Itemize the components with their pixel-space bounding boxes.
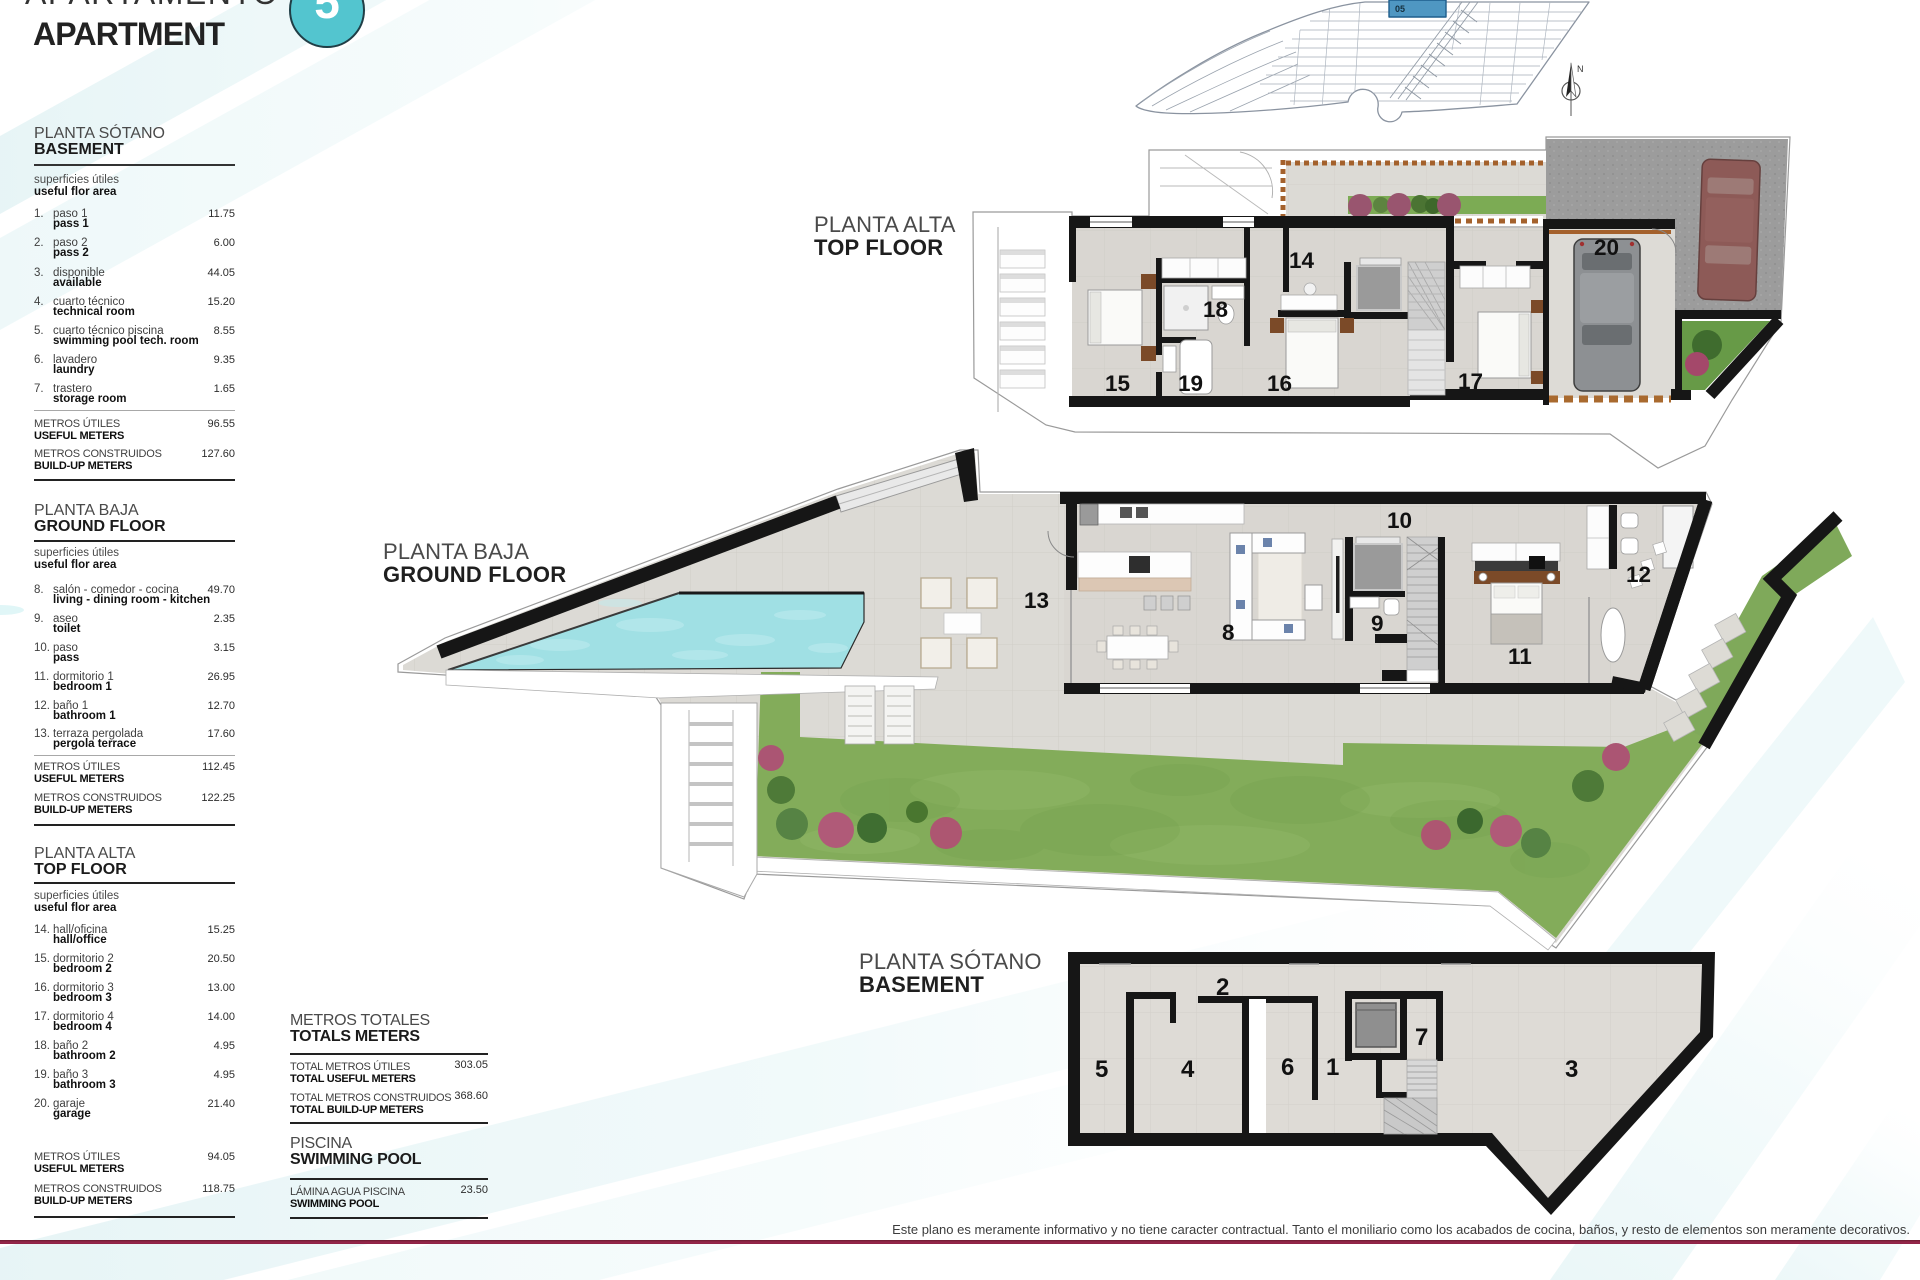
svg-text:10: 10 (1387, 508, 1412, 533)
svg-text:6: 6 (1281, 1054, 1294, 1081)
svg-text:20: 20 (1594, 235, 1619, 260)
svg-text:5: 5 (1095, 1056, 1108, 1083)
svg-text:19: 19 (1178, 371, 1203, 396)
svg-text:13: 13 (1024, 588, 1049, 613)
svg-text:7: 7 (1415, 1024, 1428, 1051)
svg-text:12: 12 (1626, 562, 1651, 587)
svg-text:9: 9 (1371, 611, 1384, 636)
svg-text:N: N (1577, 64, 1584, 74)
svg-text:18: 18 (1203, 297, 1228, 322)
svg-text:1: 1 (1326, 1054, 1339, 1081)
svg-text:17: 17 (1458, 369, 1483, 394)
svg-text:11: 11 (1508, 644, 1532, 669)
svg-text:3: 3 (1565, 1056, 1578, 1083)
svg-text:8: 8 (1222, 620, 1235, 645)
svg-text:15: 15 (1105, 371, 1130, 396)
svg-text:4: 4 (1181, 1056, 1195, 1083)
svg-text:14: 14 (1289, 248, 1315, 273)
svg-text:16: 16 (1267, 371, 1292, 396)
svg-text:05: 05 (1395, 4, 1405, 14)
svg-text:2: 2 (1216, 974, 1229, 1001)
